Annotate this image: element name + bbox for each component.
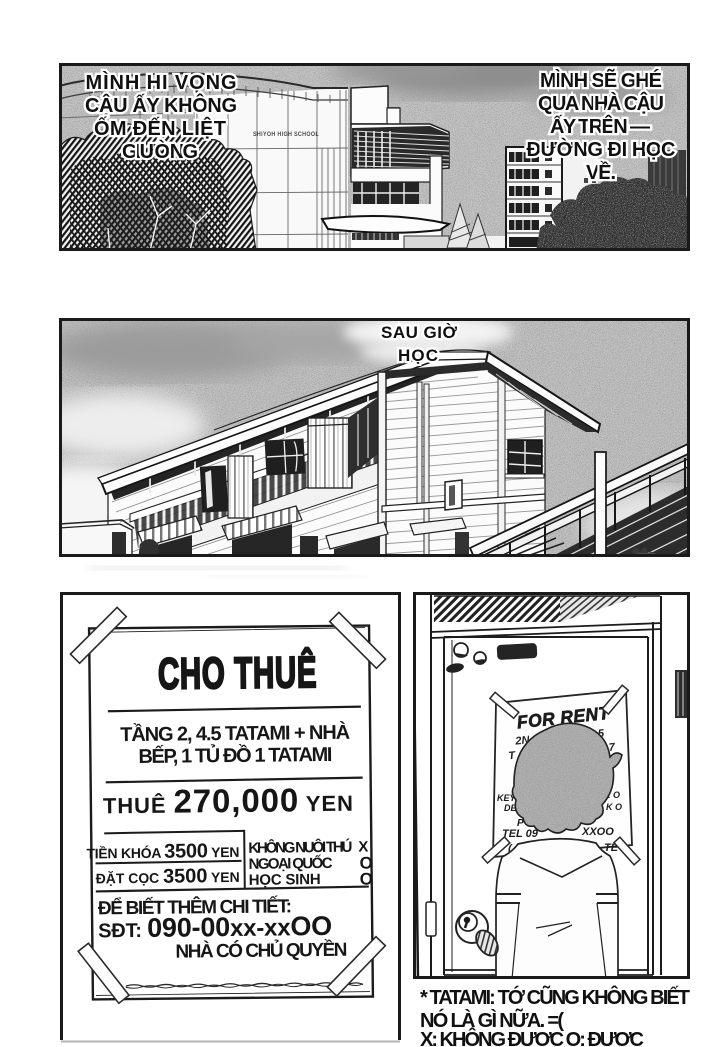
svg-text:BẾP, 1 TỦ ĐỒ 1 TATAMI: BẾP, 1 TỦ ĐỒ 1 TATAMI	[138, 742, 332, 768]
svg-text:QUA NHÀ CẬU: QUA NHÀ CẬU	[538, 91, 664, 115]
svg-text:TẦNG 2, 4.5 TATAMI + NHÀ: TẦNG 2, 4.5 TATAMI + NHÀ	[120, 721, 350, 746]
svg-text:CẬU ẤY KHÔNG: CẬU ẤY KHÔNG	[85, 93, 237, 117]
svg-text:HỌC: HỌC	[398, 346, 438, 365]
svg-text:SAU GIỜ: SAU GIỜ	[381, 323, 457, 342]
svg-text:GIƯỜNG: GIƯỜNG	[122, 139, 198, 163]
svg-text:O: O	[360, 870, 373, 889]
svg-text:VỀ.: VỀ.	[586, 161, 616, 184]
svg-text:ẤY TRÊN —: ẤY TRÊN —	[550, 114, 650, 138]
svg-text:XXOO: XXOO	[581, 826, 614, 838]
svg-text:KHÔNG NUÔI THÚ: KHÔNG NUÔI THÚ	[248, 838, 352, 857]
svg-text:SHIYOH HIGH SCHOOL: SHIYOH HIGH SCHOOL	[253, 131, 319, 138]
svg-text:ĐƯỜNG ĐI HỌC: ĐƯỜNG ĐI HỌC	[527, 137, 676, 161]
svg-text:* TATAMI: TỚ CŨNG KHÔNG BIẾT: * TATAMI: TỚ CŨNG KHÔNG BIẾT	[420, 985, 690, 1009]
svg-text:MÌNH SẼ GHÉ: MÌNH SẼ GHÉ	[540, 69, 662, 92]
svg-text:NHÀ CÓ CHỦ QUYỀN: NHÀ CÓ CHỦ QUYỀN	[175, 939, 347, 963]
svg-text:TEL 09: TEL 09	[502, 828, 539, 840]
svg-text:K O: K O	[606, 802, 622, 812]
svg-text:CHO THUÊ: CHO THUÊ	[158, 647, 318, 698]
svg-text:ỐM ĐẾN LIỆT: ỐM ĐẾN LIỆT	[94, 116, 226, 140]
svg-text:X: KHÔNG ĐƯỢC O: ĐƯỢC: X: KHÔNG ĐƯỢC O: ĐƯỢC	[420, 1027, 644, 1047]
svg-text:NGOẠI QUỐC: NGOẠI QUỐC	[248, 854, 332, 873]
svg-text:HỌC SINH: HỌC SINH	[249, 871, 321, 889]
svg-text:MÌNH HI VỌNG: MÌNH HI VỌNG	[86, 71, 237, 94]
